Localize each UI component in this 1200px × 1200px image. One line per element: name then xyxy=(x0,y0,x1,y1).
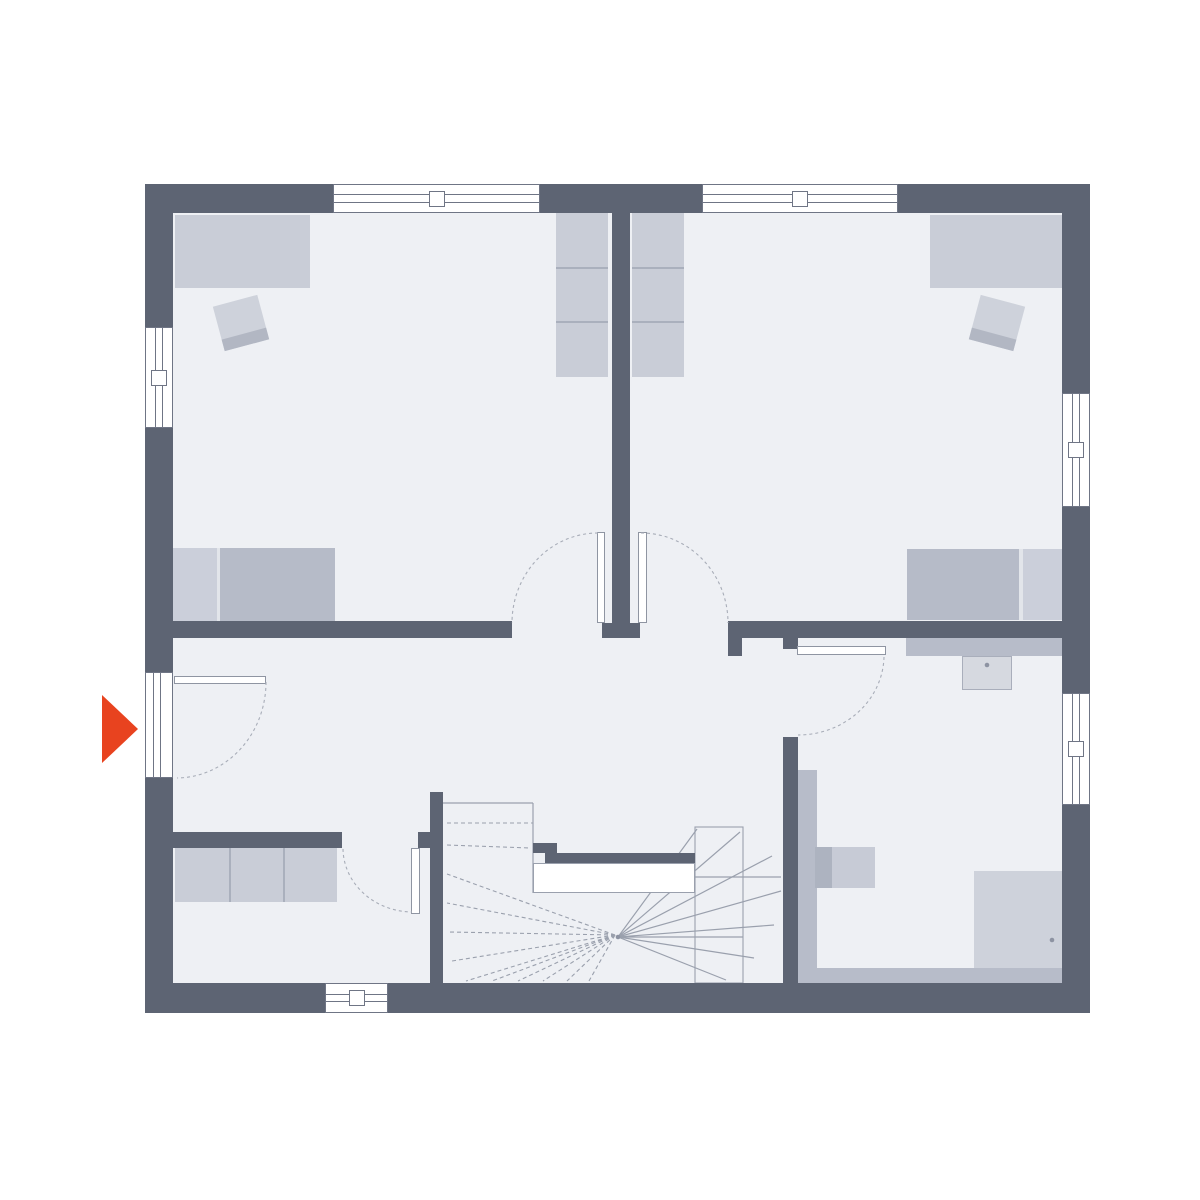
entrance-arrow xyxy=(102,695,138,763)
door-swing-storage xyxy=(343,849,412,912)
door-swing-bedroom-right xyxy=(641,533,728,623)
annotations-layer xyxy=(0,0,1200,1200)
floorplan-canvas xyxy=(0,0,1200,1200)
stair-hub-dot xyxy=(616,935,621,940)
door-swing-entrance xyxy=(177,682,266,778)
fixture-dot xyxy=(985,663,990,668)
door-swing-bathroom xyxy=(798,657,884,735)
fixture-dot xyxy=(1050,938,1055,943)
door-swing-bedroom-left xyxy=(512,533,598,623)
